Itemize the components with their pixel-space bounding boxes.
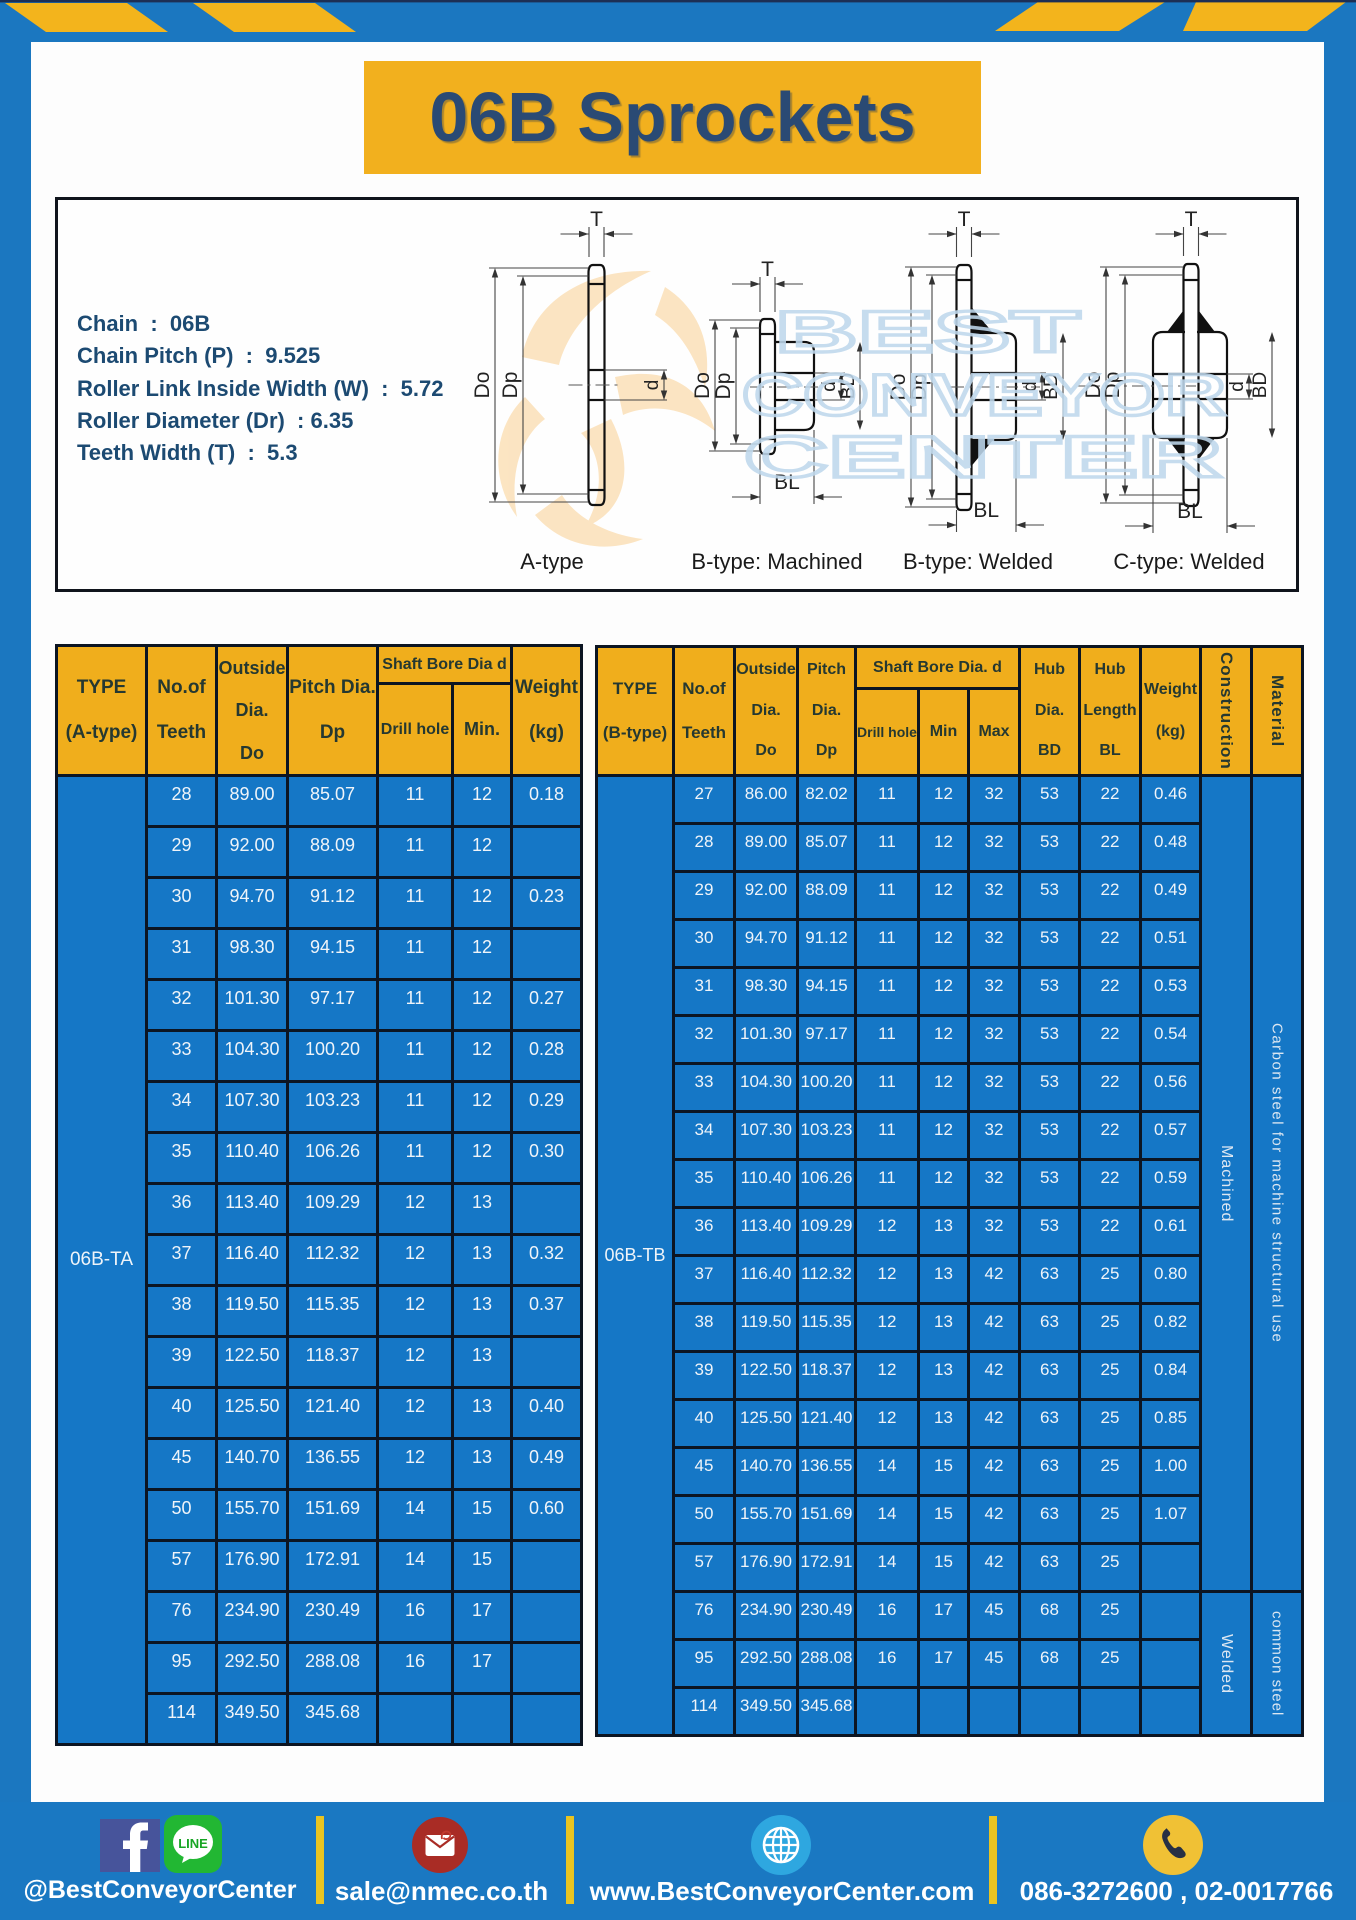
svg-text:B-type: Welded: B-type: Welded — [903, 549, 1053, 574]
svg-text:T: T — [590, 208, 603, 231]
svg-text:Dp: Dp — [499, 372, 522, 399]
svg-text:T: T — [1185, 208, 1198, 231]
svg-text:C-type: Welded: C-type: Welded — [1113, 549, 1264, 574]
svg-text:BEST: BEST — [775, 300, 1080, 365]
svg-text:BD: BD — [1250, 372, 1271, 398]
svg-text:T: T — [958, 208, 971, 231]
svg-text:B-type: Machined: B-type: Machined — [691, 549, 862, 574]
svg-text:BL: BL — [973, 499, 999, 522]
svg-text:d: d — [642, 380, 663, 391]
svg-text:A-type: A-type — [520, 549, 584, 574]
svg-text:Do: Do — [691, 372, 714, 399]
svg-text:CONVEYOR: CONVEYOR — [742, 363, 1226, 428]
svg-text:d: d — [1227, 381, 1248, 392]
svg-text:BL: BL — [1177, 500, 1203, 523]
svg-text:Do: Do — [471, 372, 494, 399]
svg-text:LINE: LINE — [178, 1836, 208, 1851]
svg-text:Dp: Dp — [712, 373, 735, 400]
svg-text:T: T — [761, 258, 774, 281]
svg-text:CENTER: CENTER — [744, 425, 1222, 490]
